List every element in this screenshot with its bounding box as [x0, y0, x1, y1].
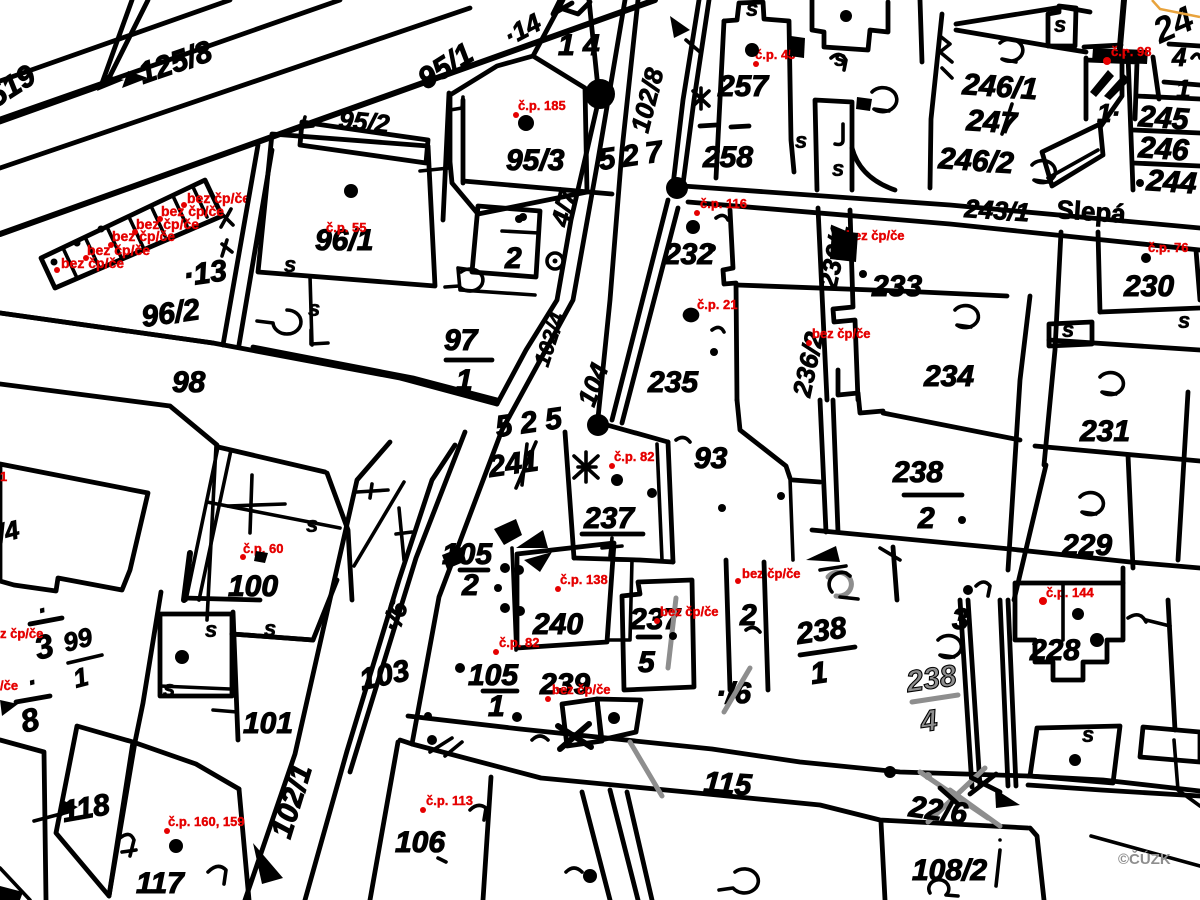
- svg-text:s: s: [1054, 12, 1066, 37]
- svg-text:228: 228: [1029, 634, 1080, 667]
- svg-text:©ČÚZK: ©ČÚZK: [1118, 850, 1171, 868]
- svg-text:č.p. 116: č.p. 116: [700, 196, 747, 211]
- svg-text:s: s: [746, 0, 758, 21]
- svg-text:244: 244: [1145, 164, 1199, 201]
- svg-text:95/3: 95/3: [506, 144, 565, 177]
- svg-text:231: 231: [1079, 415, 1130, 448]
- svg-text:1: 1: [456, 364, 473, 397]
- svg-text:Slepá: Slepá: [1056, 194, 1128, 229]
- svg-text:230: 230: [1123, 270, 1174, 303]
- svg-text:s: s: [1178, 308, 1190, 333]
- svg-text:bez čp/če: bez čp/če: [552, 682, 611, 697]
- svg-text:1: 1: [488, 690, 505, 723]
- svg-text:s: s: [1082, 722, 1094, 747]
- svg-text:95/2: 95/2: [337, 104, 391, 139]
- svg-text:2: 2: [504, 242, 522, 275]
- svg-text:č.p. 138: č.p. 138: [560, 572, 608, 587]
- svg-text:106: 106: [395, 826, 445, 859]
- svg-text:bez čp/če: bez čp/če: [812, 326, 871, 341]
- svg-text:2: 2: [461, 569, 479, 602]
- svg-text:105: 105: [468, 659, 519, 692]
- svg-text:233: 233: [871, 270, 922, 303]
- svg-text:2: 2: [917, 502, 935, 535]
- svg-text:97: 97: [444, 324, 479, 357]
- svg-text:s: s: [163, 676, 175, 701]
- svg-text:z čp/če: z čp/če: [0, 626, 43, 641]
- svg-text:105: 105: [442, 538, 493, 571]
- svg-text:č.p. 21: č.p. 21: [697, 297, 737, 312]
- svg-text:s: s: [205, 617, 217, 642]
- svg-text:s: s: [284, 252, 296, 277]
- svg-text:s: s: [1062, 317, 1074, 342]
- svg-text:č.p. 98: č.p. 98: [1111, 44, 1151, 59]
- svg-text:·13: ·13: [181, 254, 229, 293]
- svg-text:bez čp/če: bez čp/če: [742, 566, 801, 581]
- svg-text:/če: /če: [0, 678, 18, 693]
- svg-text:117: 117: [136, 867, 185, 900]
- svg-text:237: 237: [583, 502, 635, 535]
- svg-text:108/2: 108/2: [912, 854, 987, 887]
- svg-text:234: 234: [923, 360, 974, 393]
- svg-text:246/2: 246/2: [937, 142, 1016, 180]
- svg-text:246/1: 246/1: [961, 68, 1039, 106]
- svg-text:258: 258: [702, 141, 753, 174]
- svg-text:235: 235: [647, 366, 699, 399]
- svg-text:č.p. 82: č.p. 82: [614, 449, 654, 464]
- svg-text:s: s: [832, 156, 844, 181]
- svg-text:232: 232: [663, 238, 714, 271]
- svg-text:č.p. 160, 159: č.p. 160, 159: [168, 814, 245, 829]
- svg-text:93: 93: [694, 442, 728, 475]
- svg-text:98: 98: [172, 366, 206, 399]
- svg-text:bez čp/če: bez čp/če: [660, 604, 719, 619]
- svg-text:č.p. 45: č.p. 45: [755, 47, 795, 62]
- svg-text:240: 240: [532, 608, 583, 641]
- svg-text:4: 4: [1171, 42, 1187, 72]
- svg-text:č.p. 82: č.p. 82: [499, 635, 539, 650]
- svg-text:1·: 1·: [1097, 98, 1120, 128]
- svg-text:238: 238: [892, 456, 943, 489]
- svg-text:č.p. 55: č.p. 55: [326, 220, 366, 235]
- svg-text:1 4: 1 4: [558, 29, 600, 62]
- svg-text:s: s: [306, 512, 318, 537]
- svg-text:bez čp/če: bez čp/če: [61, 255, 124, 271]
- svg-text:č.p. 113: č.p. 113: [426, 793, 473, 808]
- svg-text:č.p. 185: č.p. 185: [518, 98, 566, 113]
- svg-text:115: 115: [703, 766, 754, 802]
- svg-text:č.p. 144: č.p. 144: [1046, 585, 1094, 600]
- svg-text:5: 5: [638, 646, 656, 679]
- svg-text:č.p. 76: č.p. 76: [1148, 240, 1188, 255]
- svg-text:s: s: [795, 128, 807, 153]
- svg-text:243/1: 243/1: [963, 193, 1031, 228]
- svg-text:257: 257: [717, 70, 769, 103]
- svg-text:101: 101: [243, 707, 293, 740]
- svg-text:1: 1: [0, 469, 7, 484]
- svg-text:s: s: [834, 46, 846, 71]
- svg-text:1: 1: [1176, 74, 1190, 104]
